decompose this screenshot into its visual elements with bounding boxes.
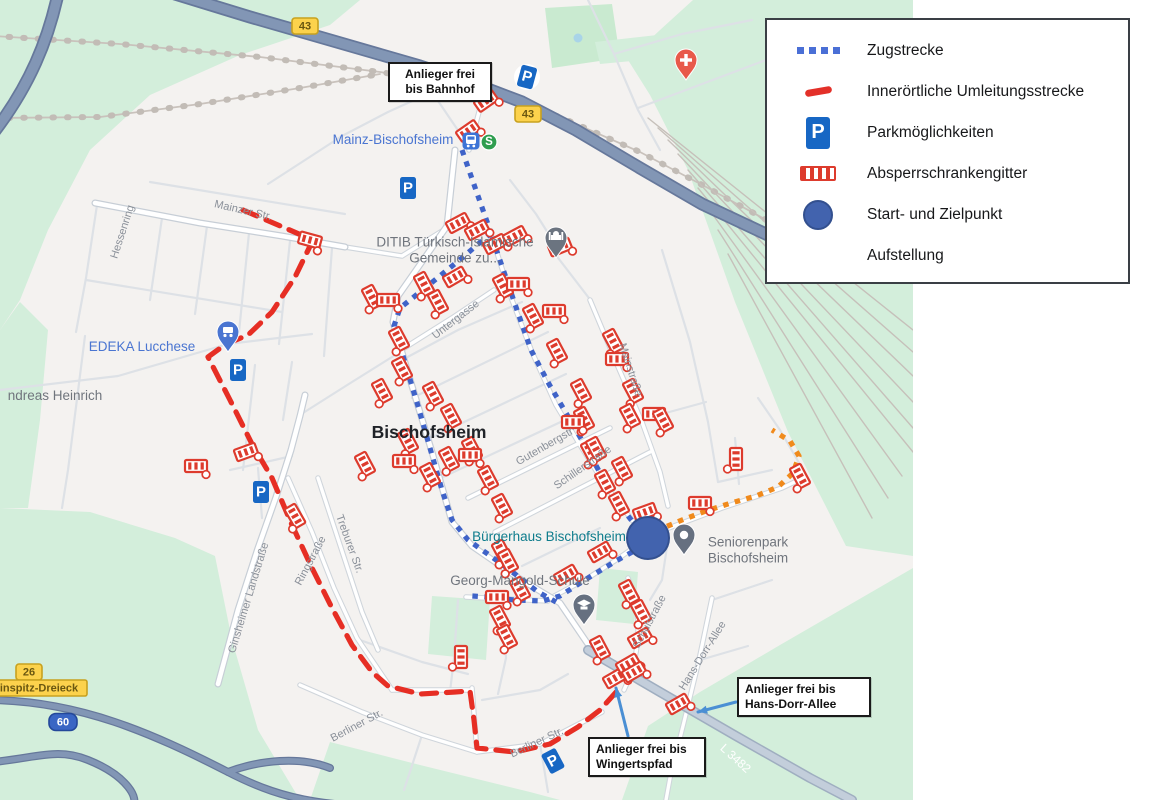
map-screenshot: PPPPPS434326inspitz-Dreieck60 Mainz-Bisc…: [0, 0, 1152, 800]
legend-label: Parkmöglichkeiten: [867, 124, 994, 142]
legend-label: Zugstrecke: [867, 42, 944, 60]
callout-box: Anlieger frei bis Bahnhof: [388, 62, 492, 102]
legend-row-umleitung: Innerörtliche Umleitungsstrecke: [781, 71, 1128, 112]
map-legend: Zugstrecke Innerörtliche Umleitungsstrec…: [765, 18, 1130, 284]
svg-text:43: 43: [299, 21, 311, 33]
legend-label: Innerörtliche Umleitungsstrecke: [867, 83, 1084, 101]
zugstrecke-dotted-line-icon: [781, 47, 855, 54]
legend-label: Start- und Zielpunkt: [867, 206, 1002, 224]
sbahn-icon: S: [481, 134, 497, 150]
svg-text:P: P: [233, 362, 243, 379]
parking-icon: P: [253, 481, 269, 503]
svg-text:26: 26: [23, 667, 35, 679]
umleitung-dash-icon: [781, 88, 855, 95]
svg-text:S: S: [485, 136, 493, 148]
road-shield-43: 43: [515, 106, 541, 122]
start-ziel-circle-icon: [781, 200, 855, 230]
parking-icon: P: [230, 359, 246, 381]
road-shield-26: 26: [16, 664, 42, 680]
barrier-gate-icon: [781, 166, 855, 181]
train-station-icon: [463, 133, 480, 150]
legend-row-absperrung: Absperrschrankengitter: [781, 153, 1128, 194]
svg-text:inspitz-Dreieck: inspitz-Dreieck: [0, 683, 79, 695]
parking-sign-icon: P: [781, 117, 855, 149]
svg-text:P: P: [256, 484, 266, 501]
start-ziel-point: [627, 517, 669, 559]
road-shield-inspitz-Dreieck: inspitz-Dreieck: [0, 680, 87, 696]
callout-box: Anlieger frei bis Wingertspfad: [588, 737, 706, 777]
road-shield-43: 43: [292, 18, 318, 34]
svg-text:60: 60: [57, 717, 69, 729]
svg-text:P: P: [403, 180, 413, 197]
legend-row-parken: P Parkmöglichkeiten: [781, 112, 1128, 153]
road-shield-60: 60: [49, 714, 77, 731]
pond: [574, 34, 583, 43]
legend-label: Aufstellung: [867, 247, 944, 265]
legend-row-zugstrecke: Zugstrecke: [781, 30, 1128, 71]
callout-box: Anlieger frei bis Hans-Dorr-Allee: [737, 677, 871, 717]
legend-label: Absperrschrankengitter: [867, 165, 1027, 183]
legend-row-aufstellung: Aufstellung: [781, 235, 1128, 276]
legend-row-startziel: Start- und Zielpunkt: [781, 194, 1128, 235]
svg-text:43: 43: [522, 109, 534, 121]
parking-icon: P: [400, 177, 416, 199]
